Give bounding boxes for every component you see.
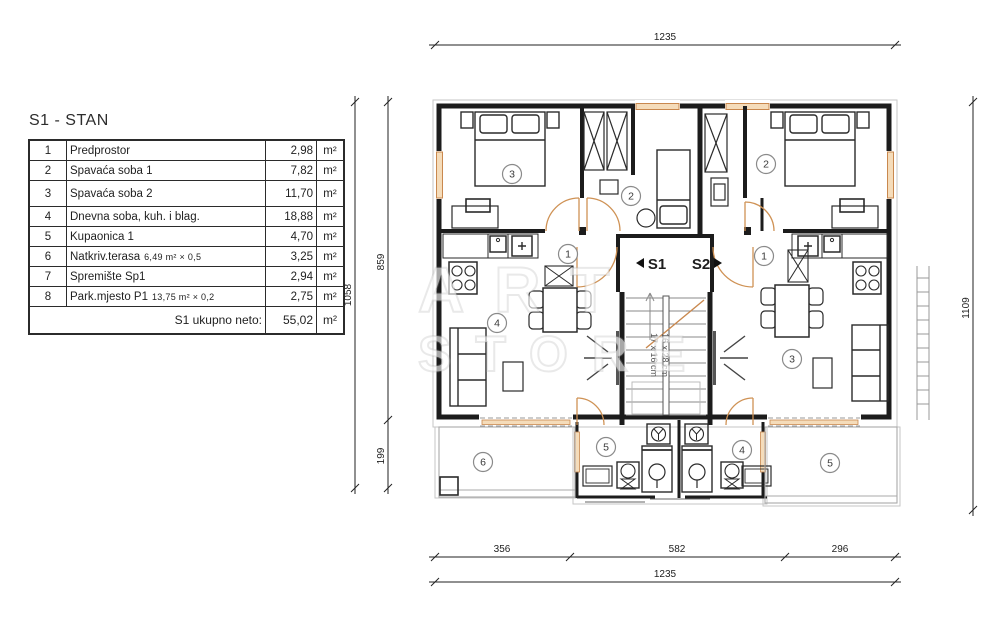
table-row: 6 Natkriv.terasa6,49 m² × 0,5 3,25 m² [29, 247, 344, 267]
row-area: 18,88 [266, 207, 317, 227]
dimension-left-overall: 1058 [343, 96, 359, 494]
row-number: 1 [29, 140, 67, 161]
room-label-s1-living: 4 [488, 314, 507, 333]
table-row: 5 Kupaonica 1 4,70 m² [29, 227, 344, 247]
table-row: 3 Spavaća soba 2 11,70 m² [29, 181, 344, 207]
terrace-left [439, 427, 575, 497]
svg-text:1: 1 [761, 251, 767, 263]
dimension-bottom-segments: 356 582 296 [429, 544, 901, 561]
row-name: Natkriv.terasa6,49 m² × 0,5 [67, 247, 266, 267]
row-name: Spavaća soba 2 [67, 181, 266, 207]
window-right [885, 151, 896, 199]
row-detail: 6,49 m² × 0,5 [140, 252, 201, 262]
stair-tread-note-2: 16 x 28 cm [660, 333, 670, 377]
svg-text:2: 2 [628, 191, 634, 203]
floor-plan: 1235 356 582 296 1235 1058 859 199 1109 [340, 0, 1000, 623]
area-table: 1 Predprostor 2,98 m² 2 Spavaća soba 1 7… [28, 139, 345, 335]
svg-text:6: 6 [480, 457, 486, 469]
dim-top-value: 1235 [654, 32, 677, 43]
terrace-door-left [479, 414, 573, 428]
terrace-door-right [767, 414, 861, 428]
table-row: 7 Spremište Sp1 2,94 m² [29, 267, 344, 287]
svg-text:5: 5 [827, 458, 833, 470]
unit-label-s2: S2 [692, 256, 710, 273]
room-label-s2-hall: 1 [755, 247, 774, 266]
row-number: 5 [29, 227, 67, 247]
dimension-left-segments: 859 199 [376, 96, 392, 494]
dimension-bottom-overall: 1235 [429, 569, 901, 586]
row-area: 2,94 [266, 267, 317, 287]
stair-tread-note-1: 17 x 16 cm [649, 333, 659, 377]
room-label-s1-bedroom1: 2 [622, 187, 641, 206]
svg-text:1: 1 [565, 249, 571, 261]
dimension-top: 1235 [429, 32, 901, 49]
row-area: 2,75 [266, 287, 317, 307]
row-number: 8 [29, 287, 67, 307]
room-label-s2-terrace: 5 [821, 454, 840, 473]
row-name: Kupaonica 1 [67, 227, 266, 247]
row-name: Park.mjesto P113,75 m² × 0,2 [67, 287, 266, 307]
bathroom-right-fixtures [682, 424, 771, 492]
page-title: S1 - STAN [29, 112, 345, 130]
room-label-s2-bath: 4 [733, 441, 752, 460]
row-number: 7 [29, 267, 67, 287]
row-area: 3,25 [266, 247, 317, 267]
dim-bottom-left: 356 [494, 544, 511, 555]
table-row: 4 Dnevna soba, kuh. i blag. 18,88 m² [29, 207, 344, 227]
dim-left-overall: 1058 [343, 283, 354, 306]
table-row: 8 Park.mjesto P113,75 m² × 0,2 2,75 m² [29, 287, 344, 307]
dim-bottom-overall: 1235 [654, 569, 677, 580]
entry-steps [585, 499, 710, 502]
row-area: 4,70 [266, 227, 317, 247]
total-label: S1 ukupno neto: [29, 307, 266, 335]
bathroom-left-fixtures [583, 424, 672, 492]
room-label-s1-bath: 5 [597, 438, 616, 457]
room-label-s1-hall: 1 [559, 245, 578, 264]
dim-bottom-right: 296 [832, 544, 849, 555]
row-name: Predprostor [67, 140, 266, 161]
table-total-row: S1 ukupno neto: 55,02 m² [29, 307, 344, 335]
dim-left-upper: 859 [376, 253, 387, 270]
area-table-block: S1 - STAN 1 Predprostor 2,98 m² 2 Spavać… [28, 112, 345, 335]
svg-text:4: 4 [739, 445, 745, 457]
room-label-s2-living: 3 [783, 350, 802, 369]
table-row: 1 Predprostor 2,98 m² [29, 140, 344, 161]
row-detail: 13,75 m² × 0,2 [148, 292, 215, 302]
row-name: Spavaća soba 1 [67, 161, 266, 181]
row-area: 11,70 [266, 181, 317, 207]
dim-left-lower: 199 [376, 447, 387, 464]
facade-trellis [917, 266, 929, 420]
svg-text:5: 5 [603, 442, 609, 454]
svg-text:3: 3 [509, 169, 515, 181]
row-number: 4 [29, 207, 67, 227]
table-row: 2 Spavaća soba 1 7,82 m² [29, 161, 344, 181]
row-area: 2,98 [266, 140, 317, 161]
row-number: 3 [29, 181, 67, 207]
row-name: Dnevna soba, kuh. i blag. [67, 207, 266, 227]
dimension-right: 1109 [961, 96, 977, 516]
room-label-s1-terrace: 6 [474, 453, 493, 472]
row-name: Spremište Sp1 [67, 267, 266, 287]
row-number: 6 [29, 247, 67, 267]
svg-text:4: 4 [494, 318, 500, 330]
dim-bottom-center: 582 [669, 544, 686, 555]
row-area: 7,82 [266, 161, 317, 181]
svg-text:3: 3 [789, 354, 795, 366]
total-area: 55,02 [266, 307, 317, 335]
window-left [434, 151, 445, 199]
room-label-s2-bedroom1: 2 [757, 155, 776, 174]
svg-text:2: 2 [763, 159, 769, 171]
window-top-right [725, 100, 770, 112]
row-number: 2 [29, 161, 67, 181]
dim-right-value: 1109 [961, 297, 972, 319]
window-top-left [635, 100, 680, 112]
room-label-s1-bedroom2: 3 [503, 165, 522, 184]
unit-label-s1: S1 [648, 256, 666, 273]
